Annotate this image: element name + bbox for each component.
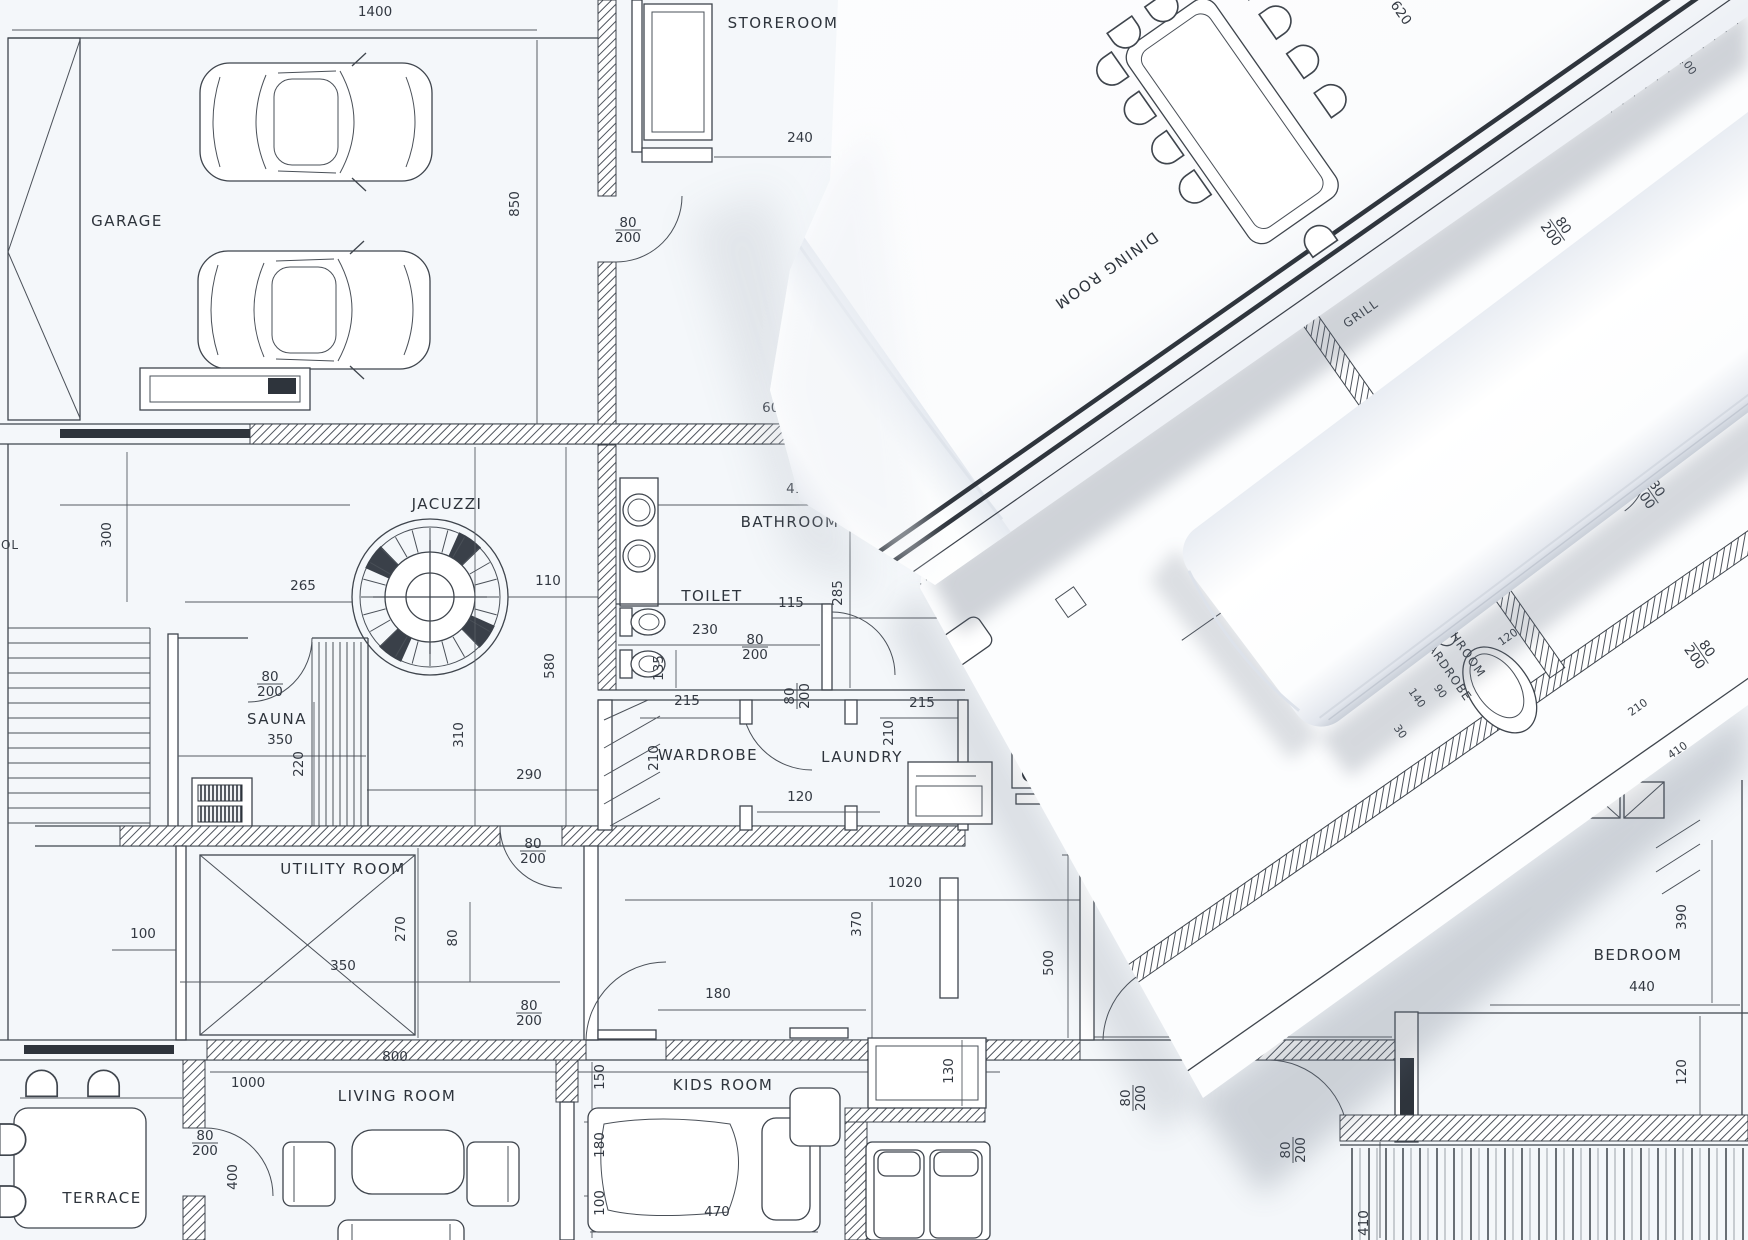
dimension-label: 410 (1356, 1210, 1372, 1236)
car-top-view (198, 241, 430, 379)
dimension-label: 130 (941, 1058, 957, 1084)
dimension-label: 180 (705, 986, 731, 1002)
dimension-label: 350 (330, 958, 356, 974)
dimension-label: 310 (451, 722, 467, 748)
dimension-label: 350 (267, 732, 293, 748)
dimension-label: 290 (516, 767, 542, 783)
room-label: GARAGE (91, 212, 163, 230)
room-label: LAUNDRY (821, 748, 903, 766)
toilet (620, 608, 665, 636)
dimension-label: 850 (507, 191, 523, 217)
dimension-label: 390 (1674, 904, 1690, 930)
room-label: WARDROBE (658, 746, 758, 764)
dimension-label: 240 (787, 130, 813, 146)
dimension-label: 1020 (888, 875, 922, 891)
dimension-label: 800 (382, 1049, 408, 1065)
dimension-label: 1000 (231, 1075, 265, 1091)
dimension-label: 580 (542, 653, 558, 679)
dimension-label: 180 (592, 1132, 608, 1158)
room-label: TOILET (680, 587, 742, 605)
sauna-stove (192, 778, 252, 828)
car-top-view (200, 53, 432, 191)
dimension-label: 500 (1041, 950, 1057, 976)
door-size-top: 80 (524, 836, 541, 852)
dimension-label: 400 (225, 1164, 241, 1190)
room-label: OL (1, 538, 19, 552)
blueprint-scene: 1400GARAGE850STOREROOM30024080200600OL30… (0, 0, 1748, 1240)
dimension-label: 230 (692, 622, 718, 638)
dimension-label: 120 (787, 789, 813, 805)
door-size-bottom: 200 (192, 1143, 218, 1159)
room-label: TERRACE (61, 1189, 141, 1207)
garage-workbench (140, 368, 310, 410)
dimension-label: 210 (881, 720, 897, 746)
door-size-top: 80 (261, 669, 278, 685)
door-size-top: 80 (196, 1128, 213, 1144)
dimension-label: 110 (535, 573, 561, 589)
dimension-label: 100 (592, 1190, 608, 1216)
dimension-label: 1400 (358, 4, 392, 20)
dimension-label: 370 (849, 911, 865, 937)
dimension-label: 470 (704, 1204, 730, 1220)
door-size-bottom: 200 (257, 684, 283, 700)
door-size-top: 80 (746, 632, 763, 648)
dimension-label: 270 (393, 916, 409, 942)
room-label: JACUZZI (411, 495, 483, 513)
door-size-top: 80 (1118, 1089, 1134, 1106)
dimension-label: 285 (830, 580, 846, 606)
double-bed (866, 1142, 990, 1240)
door-size-bottom: 200 (742, 647, 768, 663)
dimension-label: 120 (1674, 1059, 1690, 1085)
blueprint-photo: 1400GARAGE850STOREROOM30024080200600OL30… (0, 0, 1748, 1240)
room-label: SAUNA (247, 710, 307, 728)
dimension-label: 80 (445, 929, 461, 946)
dimension-label: 150 (592, 1064, 608, 1090)
dimension-label: 215 (674, 693, 700, 709)
room-label: KIDS ROOM (673, 1076, 774, 1094)
dimension-label: 220 (291, 751, 307, 777)
door-size-bottom: 200 (797, 683, 813, 709)
dimension-label: 100 (130, 926, 156, 942)
dimension-label: 300 (99, 522, 115, 548)
room-label: BEDROOM (1594, 946, 1683, 964)
door-size-bottom: 200 (615, 230, 641, 246)
dimension-label: 265 (290, 578, 316, 594)
door-size-bottom: 200 (516, 1013, 542, 1029)
door-size-top: 80 (619, 215, 636, 231)
room-label: LIVING ROOM (338, 1087, 457, 1105)
room-label: STOREROOM (728, 14, 839, 32)
door-size-top: 80 (520, 998, 537, 1014)
door-size-bottom: 200 (520, 851, 546, 867)
dimension-label: 115 (778, 595, 804, 611)
dimension-label: 440 (1629, 979, 1655, 995)
dimension-label: 135 (651, 655, 667, 681)
room-label: UTILITY ROOM (280, 860, 405, 878)
door-size-top: 80 (782, 687, 798, 704)
